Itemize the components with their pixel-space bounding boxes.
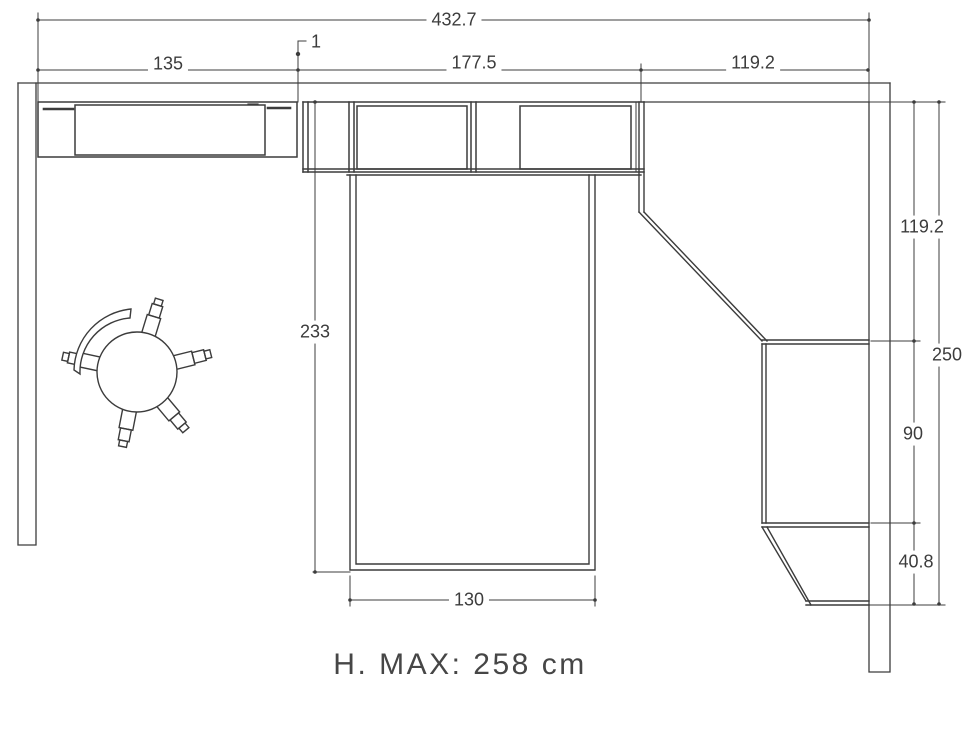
dim-bed-depth-label: 233 — [295, 321, 335, 344]
bed — [347, 175, 641, 570]
dim-right-depth-top-label: 119.2 — [895, 216, 949, 239]
dim-right-depth-middle-label: 90 — [898, 423, 928, 446]
chair-seat — [97, 332, 177, 412]
floor-plan-drawing — [0, 0, 970, 752]
office-chair — [61, 297, 212, 448]
desk — [38, 102, 297, 157]
dim-corner-width-label: 119.2 — [726, 52, 780, 75]
dim-unit-gap-label: 1 — [309, 32, 323, 53]
dim-desk-width-label: 135 — [148, 53, 188, 76]
wardrobe — [303, 102, 644, 172]
dim-total-width-label: 432.7 — [426, 9, 481, 32]
dim-bed-width-label: 130 — [449, 589, 489, 612]
dimension-markers — [36, 18, 941, 606]
dim-right-depth-bottom-label: 40.8 — [893, 551, 938, 574]
max-height-note: H. MAX: 258 cm — [333, 648, 586, 682]
dim-right-total-depth-label: 250 — [927, 344, 967, 367]
corner-wardrobe — [639, 102, 869, 605]
floor-plan: 432.7 135 1 177.5 119.2 119.2 250 90 40.… — [0, 0, 970, 752]
dim-wardrobe-width-label: 177.5 — [446, 52, 501, 75]
